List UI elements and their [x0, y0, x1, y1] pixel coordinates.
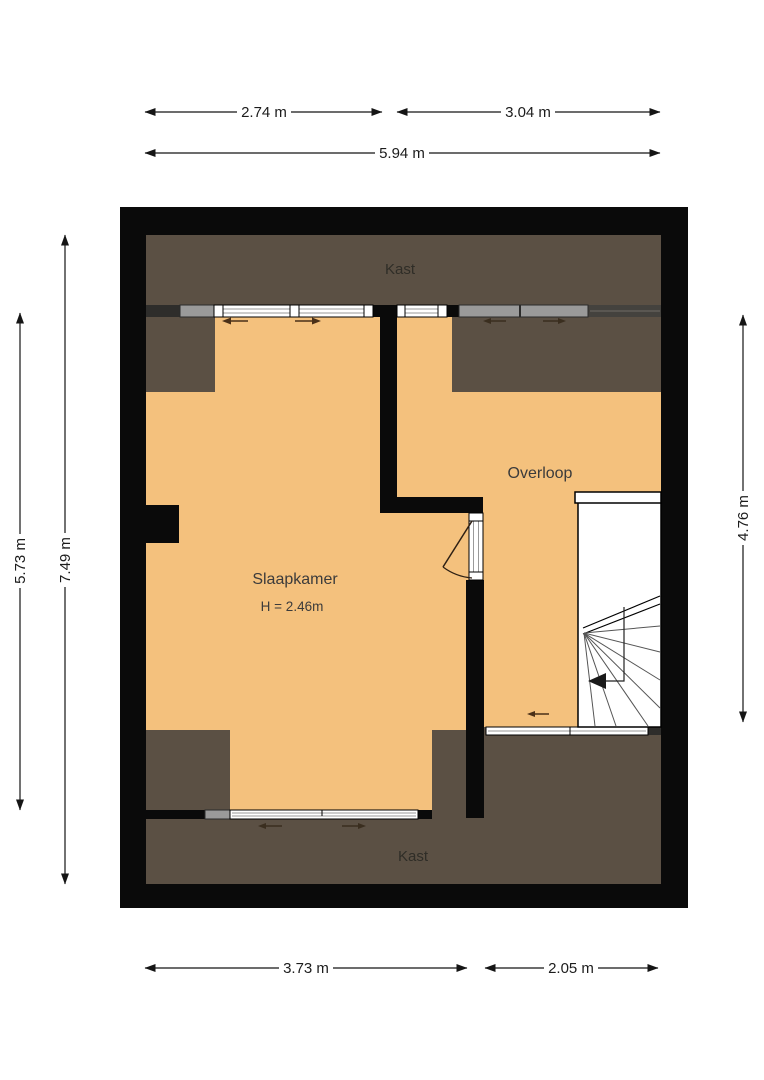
- wall-middle-horizontal: [380, 497, 483, 513]
- wall-bar-bottom-left: [146, 810, 205, 819]
- dim-label-top-left: 2.74 m: [241, 104, 287, 121]
- room-label-overloop: Overloop: [508, 465, 573, 482]
- bottom-window-band: [205, 810, 418, 819]
- dim-label-bottom-left: 3.73 m: [283, 960, 329, 977]
- wall-bottom: [120, 884, 688, 908]
- wall-top: [120, 207, 688, 235]
- window-strip-top-left: [180, 305, 214, 317]
- wall-middle-head: [373, 305, 397, 317]
- sliding-window-bottom: [230, 810, 418, 819]
- window-jamb: [397, 305, 405, 317]
- overloop-window-band: [486, 727, 648, 735]
- floorplan-canvas: Kast Slaapkamer H = 2.46m Overloop Kast …: [0, 0, 764, 1080]
- dim-label-left-inner: 5.73 m: [12, 538, 29, 584]
- dim-label-top-total: 5.94 m: [379, 145, 425, 162]
- dim-label-right: 4.76 m: [735, 495, 752, 541]
- room-label-slaapkamer: Slaapkamer: [252, 571, 338, 588]
- wall-right: [661, 207, 688, 908]
- room-label-kast-top: Kast: [385, 261, 416, 278]
- floorplan-svg: Kast Slaapkamer H = 2.46m Overloop Kast …: [0, 0, 764, 1080]
- door-jamb: [469, 513, 483, 521]
- wall-middle-lower: [466, 580, 484, 818]
- wall-middle-upper: [380, 305, 397, 513]
- window-jamb: [364, 305, 373, 317]
- staircase: [575, 492, 661, 727]
- slaapkamer-floor-top: [215, 305, 380, 392]
- stair-railing: [575, 492, 661, 503]
- window-strip-top-right: [459, 305, 588, 317]
- slaapkamer-floor-bottom: [230, 730, 432, 810]
- room-label-kast-bottom: Kast: [398, 848, 429, 865]
- wall-stub-top: [447, 305, 459, 317]
- dim-label-bottom-right: 2.05 m: [548, 960, 594, 977]
- wall-stub-overloop-window: [648, 727, 661, 735]
- dim-label-left-outer: 7.49 m: [57, 537, 74, 583]
- wall-left: [120, 207, 146, 908]
- stair-well: [578, 495, 661, 727]
- chimney-block: [146, 505, 179, 543]
- room-label-slaapkamer-height: H = 2.46m: [261, 599, 324, 614]
- dim-label-top-right: 3.04 m: [505, 104, 551, 121]
- window-jamb: [214, 305, 223, 317]
- window-strip-bottom-left: [205, 810, 230, 819]
- window-jamb: [438, 305, 447, 317]
- wall-stub-bottom: [418, 810, 432, 819]
- window-mullion: [290, 305, 299, 317]
- overloop-floor-top: [397, 305, 452, 392]
- wall-bar-top-left: [146, 305, 180, 317]
- door-jamb: [469, 572, 483, 580]
